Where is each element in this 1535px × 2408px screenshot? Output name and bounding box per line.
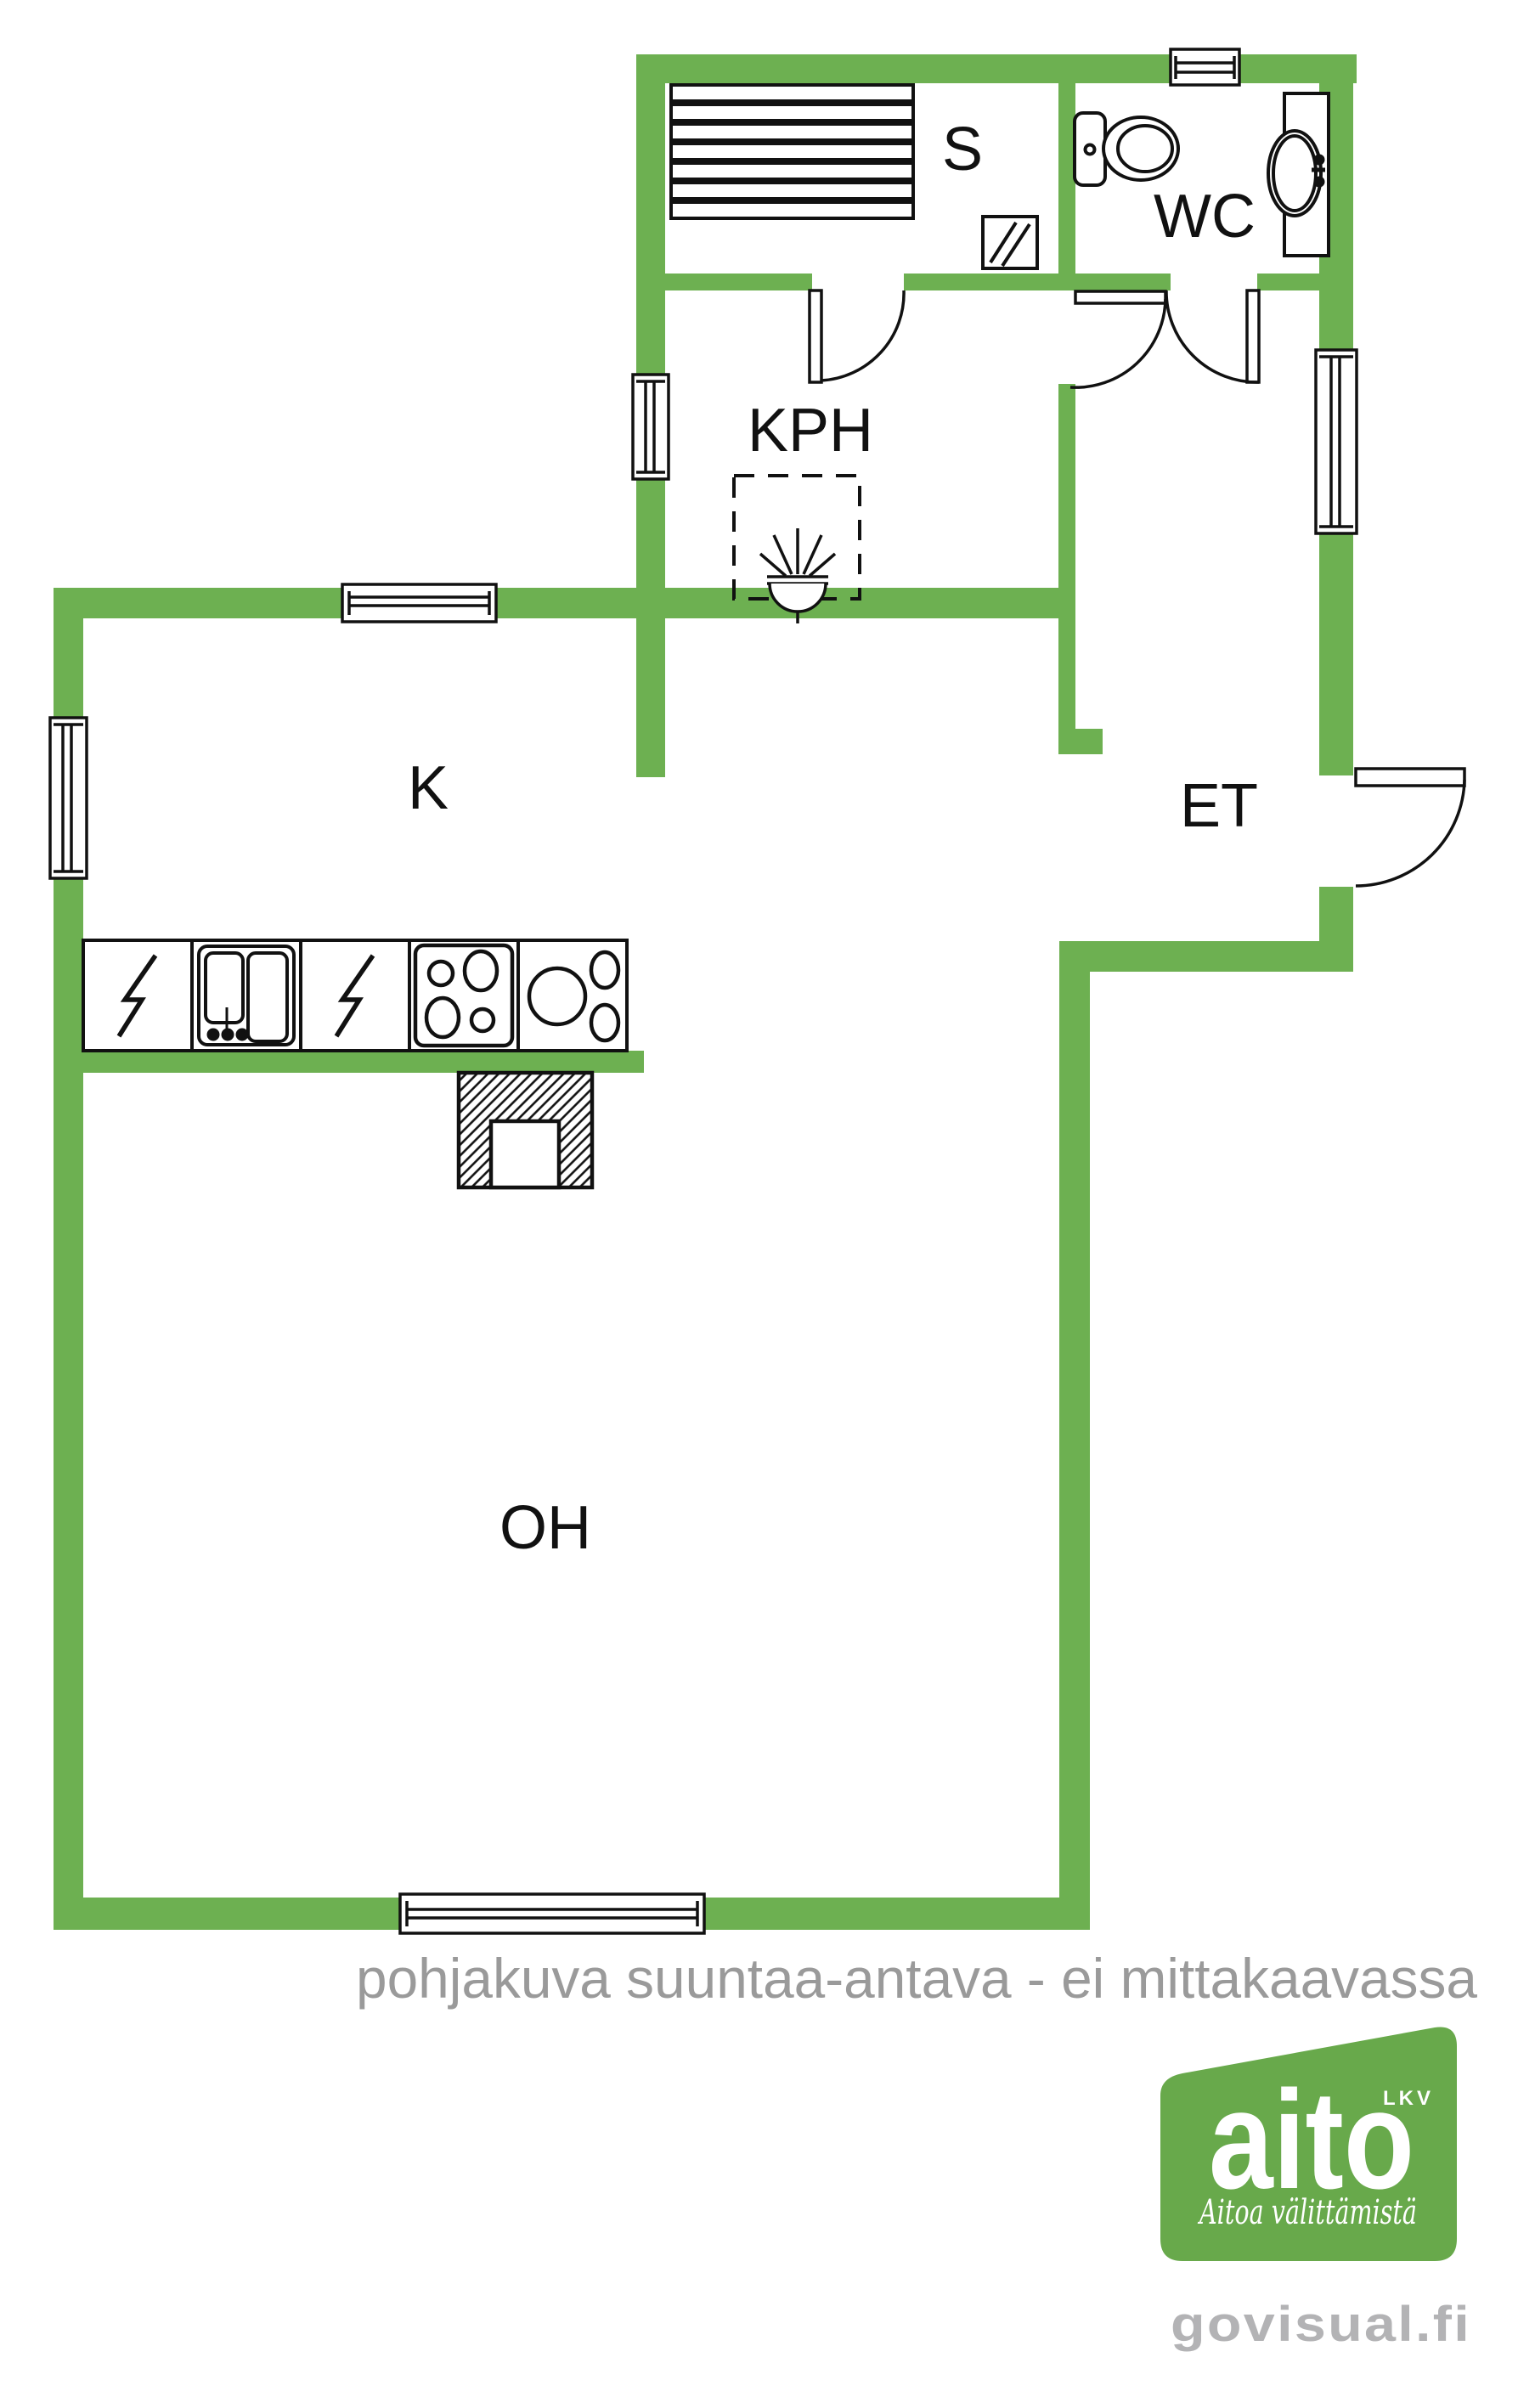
chimney-icon [459, 1073, 592, 1187]
room-label-entry: ET [1180, 772, 1258, 840]
aito-logo: aito LKV Aitoa välittämistä [1160, 2027, 1457, 2261]
wall-segment [636, 54, 665, 378]
kitchen-counter [83, 940, 627, 1051]
sauna-heater-icon [983, 217, 1037, 268]
wall-segment [636, 618, 665, 777]
window-kitchen-top-wall [342, 584, 496, 622]
wall-segment [636, 476, 665, 588]
kitchen-sink-icon [199, 946, 294, 1045]
door-sauna [810, 290, 904, 382]
watermark-text: govisual.fi [1171, 2297, 1471, 2352]
wall-segment [1059, 941, 1090, 1930]
wall-segment [1058, 729, 1103, 754]
door-kph-hall [1070, 291, 1165, 387]
toilet-icon [1075, 113, 1178, 185]
wall-segment [636, 54, 1357, 83]
wall-segment [1257, 274, 1319, 290]
room-label-kitchen: K [408, 754, 449, 822]
vent-wc-top-wall [1171, 49, 1239, 85]
room-label-sauna: S [942, 116, 983, 183]
stove-hob-icon [415, 945, 512, 1046]
aito-logo-lkv: LKV [1383, 2087, 1434, 2110]
floor-plan-page: S WC KPH K ET OH pohjakuva suuntaa-antav… [0, 0, 1535, 2408]
wall-segment [1059, 941, 1353, 972]
room-labels: S WC KPH K ET OH [408, 116, 1258, 1562]
wall-segment [701, 1898, 1090, 1930]
wall-segment [1319, 530, 1353, 775]
window-living-bottom-wall [400, 1894, 704, 1933]
wall-segment [665, 274, 812, 290]
wall-segment [54, 1051, 644, 1073]
floor-plan-canvas: S WC KPH K ET OH pohjakuva suuntaa-antav… [0, 0, 1535, 2408]
window-right-wall [1316, 350, 1357, 533]
window-left-wall [50, 718, 87, 878]
washbasin-icon [1268, 93, 1329, 256]
footer: pohjakuva suuntaa-antava - ei mittakaava… [356, 1947, 1477, 2352]
wall-segment [54, 1898, 404, 1930]
door-wc [1166, 290, 1259, 382]
fixtures [83, 85, 1329, 1187]
door-entry [1356, 769, 1464, 886]
wall-segment [1058, 384, 1075, 729]
sauna-benches [671, 85, 913, 218]
wall-segment [1058, 83, 1075, 290]
disclaimer-text: pohjakuva suuntaa-antava - ei mittakaava… [356, 1947, 1477, 2010]
aito-logo-tagline: Aitoa välittämistä [1197, 2193, 1417, 2232]
wall-segment [54, 588, 346, 618]
room-label-living: OH [499, 1494, 591, 1562]
room-label-wc: WC [1154, 183, 1256, 251]
wall-segment [1319, 887, 1353, 972]
wall-segment [54, 875, 83, 1930]
window-kph-left-wall [633, 375, 669, 479]
room-label-bathroom: KPH [748, 397, 873, 465]
wall-segment [904, 274, 1171, 290]
